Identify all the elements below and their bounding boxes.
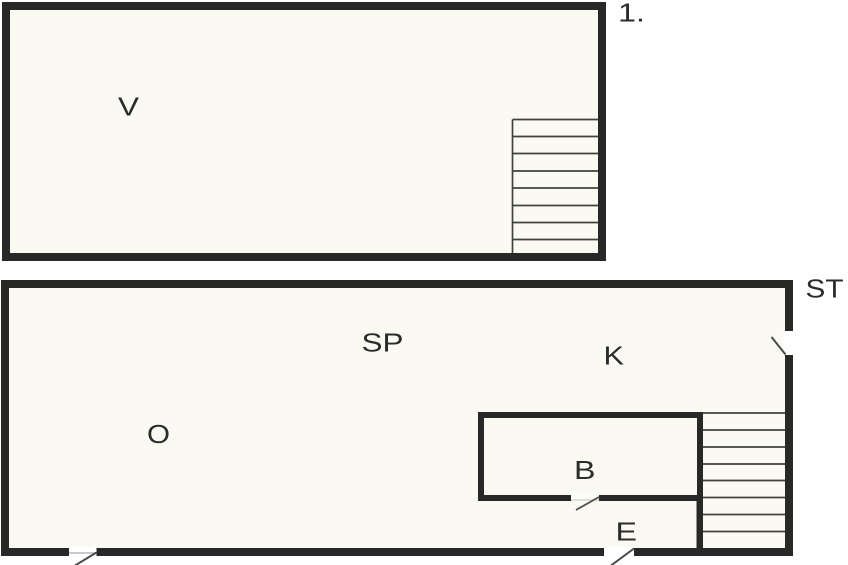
- svg-text:E: E: [616, 517, 638, 547]
- svg-text:V: V: [118, 92, 140, 122]
- svg-text:1.: 1.: [618, 0, 645, 28]
- svg-text:ST: ST: [806, 274, 844, 304]
- svg-text:B: B: [574, 455, 596, 485]
- svg-text:SP: SP: [362, 328, 404, 358]
- svg-text:O: O: [147, 419, 170, 449]
- svg-text:K: K: [604, 341, 625, 371]
